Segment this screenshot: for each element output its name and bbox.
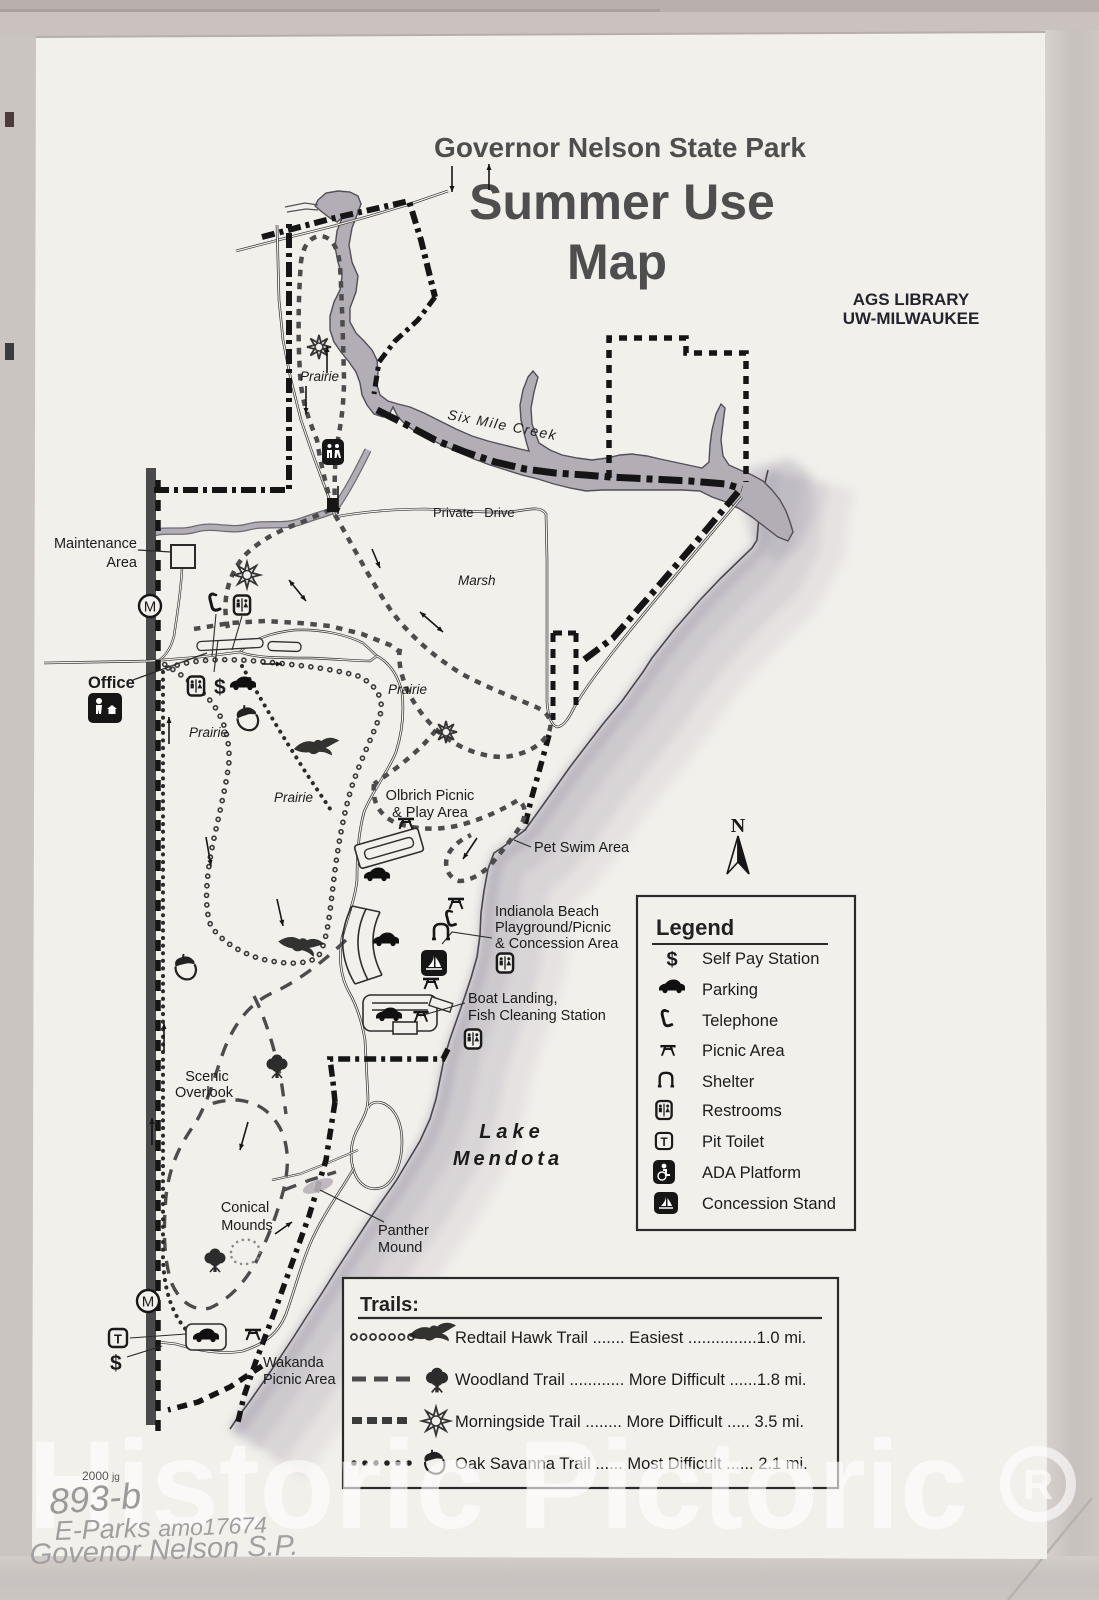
svg-text:R: R bbox=[1023, 1461, 1053, 1508]
svg-text:Prairie: Prairie bbox=[388, 682, 427, 697]
svg-text:T: T bbox=[660, 1136, 668, 1149]
svg-text:M: M bbox=[144, 599, 157, 616]
svg-text:& Concession Area: & Concession Area bbox=[495, 936, 619, 952]
svg-text:Map: Map bbox=[567, 234, 667, 290]
svg-text:Scenic: Scenic bbox=[185, 1069, 229, 1085]
svg-text:Mound: Mound bbox=[378, 1240, 422, 1256]
svg-text:AGS LIBRARY: AGS LIBRARY bbox=[853, 290, 970, 309]
svg-text:ADA Platform: ADA Platform bbox=[702, 1164, 801, 1182]
svg-text:Shelter: Shelter bbox=[702, 1073, 755, 1091]
svg-text:Boat Landing,: Boat Landing, bbox=[468, 991, 558, 1007]
svg-text:Conical: Conical bbox=[221, 1200, 269, 1216]
svg-text:Picnic Area: Picnic Area bbox=[263, 1372, 336, 1388]
svg-text:Office: Office bbox=[88, 674, 135, 692]
svg-text:Area: Area bbox=[106, 555, 138, 571]
svg-text:Pet Swim Area: Pet Swim Area bbox=[534, 840, 630, 856]
svg-text:& Play Area: & Play Area bbox=[392, 805, 469, 821]
svg-text:Concession Stand: Concession Stand bbox=[702, 1195, 836, 1213]
svg-text:Redtail Hawk Trail ....... Eas: Redtail Hawk Trail ....... Easiest .....… bbox=[455, 1329, 806, 1347]
svg-text:Overlook: Overlook bbox=[175, 1085, 234, 1101]
svg-text:Wakanda: Wakanda bbox=[263, 1355, 325, 1371]
svg-text:Self Pay Station: Self Pay Station bbox=[702, 950, 819, 968]
svg-text:Lake: Lake bbox=[479, 1121, 545, 1143]
svg-text:Mounds: Mounds bbox=[221, 1218, 273, 1234]
svg-text:Fish Cleaning Station: Fish Cleaning Station bbox=[468, 1008, 606, 1024]
svg-text:T: T bbox=[114, 1332, 122, 1347]
svg-text:Parking: Parking bbox=[702, 981, 758, 999]
svg-text:Governor Nelson State Park: Governor Nelson State Park bbox=[434, 132, 806, 163]
svg-text:Picnic Area: Picnic Area bbox=[702, 1042, 785, 1060]
svg-text:Summer Use: Summer Use bbox=[469, 174, 775, 230]
svg-text:Pit Toilet: Pit Toilet bbox=[702, 1133, 764, 1151]
svg-text:N: N bbox=[731, 815, 746, 837]
svg-text:UW-MILWAUKEE: UW-MILWAUKEE bbox=[843, 309, 980, 328]
svg-text:Prairie: Prairie bbox=[274, 790, 313, 805]
svg-text:Playground/Picnic: Playground/Picnic bbox=[495, 920, 611, 936]
svg-text:Restrooms: Restrooms bbox=[702, 1102, 782, 1120]
svg-text:$: $ bbox=[214, 676, 226, 699]
svg-text:Legend: Legend bbox=[656, 915, 734, 940]
svg-text:Woodland Trail ............ Mo: Woodland Trail ............ More Difficu… bbox=[455, 1371, 807, 1389]
svg-text:Prairie: Prairie bbox=[189, 725, 228, 740]
svg-text:Prairie: Prairie bbox=[300, 369, 339, 384]
svg-text:Olbrich Picnic: Olbrich Picnic bbox=[386, 788, 475, 804]
svg-text:Maintenance: Maintenance bbox=[54, 536, 137, 552]
svg-text:Trails:: Trails: bbox=[360, 1294, 419, 1316]
svg-text:$: $ bbox=[110, 1352, 122, 1375]
svg-text:Telephone: Telephone bbox=[702, 1012, 778, 1030]
svg-text:Panther: Panther bbox=[378, 1223, 429, 1239]
svg-text:Private Drive: Private Drive bbox=[433, 505, 515, 520]
svg-text:Indianola Beach: Indianola Beach bbox=[495, 904, 599, 920]
svg-text:M: M bbox=[142, 1294, 155, 1311]
svg-text:Mendota: Mendota bbox=[453, 1148, 563, 1170]
svg-text:Marsh: Marsh bbox=[458, 573, 496, 588]
svg-text:$: $ bbox=[666, 949, 677, 971]
